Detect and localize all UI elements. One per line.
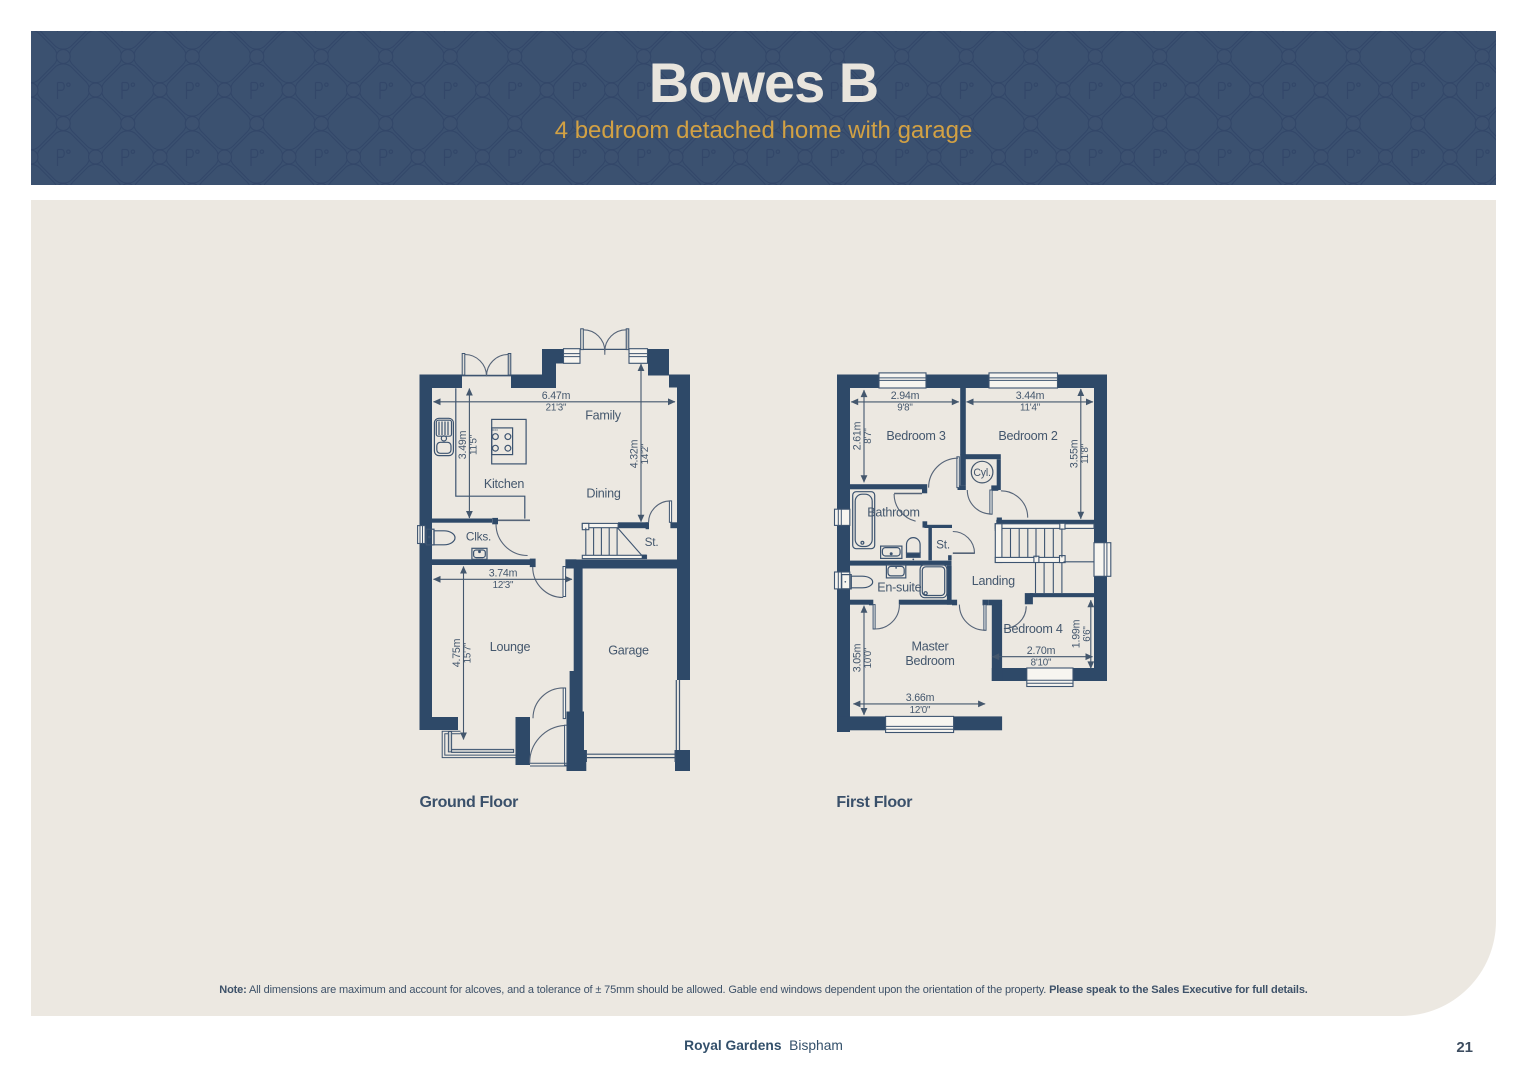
svg-text:4.75m: 4.75m — [451, 638, 463, 667]
svg-text:6.47m: 6.47m — [542, 390, 571, 402]
svg-text:Bedroom 2: Bedroom 2 — [998, 429, 1058, 443]
svg-text:12'3": 12'3" — [493, 580, 514, 591]
svg-text:Landing: Landing — [972, 574, 1015, 588]
svg-text:3.05m: 3.05m — [852, 643, 864, 672]
svg-text:2.94m: 2.94m — [891, 390, 920, 402]
svg-text:8'10": 8'10" — [1031, 658, 1052, 669]
svg-text:9'8": 9'8" — [897, 403, 913, 414]
svg-text:4.32m: 4.32m — [629, 439, 641, 468]
svg-text:11'5": 11'5" — [469, 434, 480, 455]
svg-text:En-suite: En-suite — [877, 581, 921, 595]
svg-text:Master: Master — [912, 640, 949, 654]
svg-text:Kitchen: Kitchen — [484, 477, 525, 491]
svg-text:Cyl.: Cyl. — [973, 467, 990, 479]
svg-text:3.55m: 3.55m — [1068, 439, 1080, 468]
svg-text:3.49m: 3.49m — [457, 430, 469, 459]
svg-text:14'2": 14'2" — [640, 443, 651, 464]
svg-text:Family: Family — [585, 409, 622, 423]
svg-text:Lounge: Lounge — [490, 640, 531, 654]
svg-text:Garage: Garage — [608, 644, 649, 658]
svg-text:10'0": 10'0" — [863, 647, 874, 668]
svg-text:3.74m: 3.74m — [489, 568, 518, 580]
svg-text:15'7": 15'7" — [463, 642, 474, 663]
svg-text:Bedroom 4: Bedroom 4 — [1003, 622, 1063, 636]
svg-text:Bathroom: Bathroom — [867, 506, 920, 520]
svg-text:1.99m: 1.99m — [1071, 619, 1083, 648]
svg-text:Clks.: Clks. — [466, 530, 491, 544]
svg-text:6'6": 6'6" — [1082, 626, 1093, 642]
svg-text:Dining: Dining — [586, 486, 620, 500]
svg-text:12'0": 12'0" — [910, 705, 931, 716]
svg-text:11'8": 11'8" — [1080, 443, 1091, 464]
svg-text:First Floor: First Floor — [836, 794, 912, 811]
svg-text:8'7": 8'7" — [863, 428, 874, 444]
svg-text:St.: St. — [645, 535, 659, 549]
svg-text:Bedroom 3: Bedroom 3 — [886, 429, 946, 443]
svg-text:21'3": 21'3" — [546, 403, 567, 414]
svg-text:Bedroom: Bedroom — [905, 654, 954, 668]
svg-text:Ground Floor: Ground Floor — [420, 794, 519, 811]
svg-text:St.: St. — [936, 537, 950, 551]
svg-text:3.66m: 3.66m — [906, 692, 935, 704]
svg-text:2.61m: 2.61m — [852, 421, 864, 450]
svg-text:2.70m: 2.70m — [1027, 645, 1056, 657]
svg-text:3.44m: 3.44m — [1016, 390, 1045, 402]
svg-text:11'4": 11'4" — [1020, 403, 1041, 414]
